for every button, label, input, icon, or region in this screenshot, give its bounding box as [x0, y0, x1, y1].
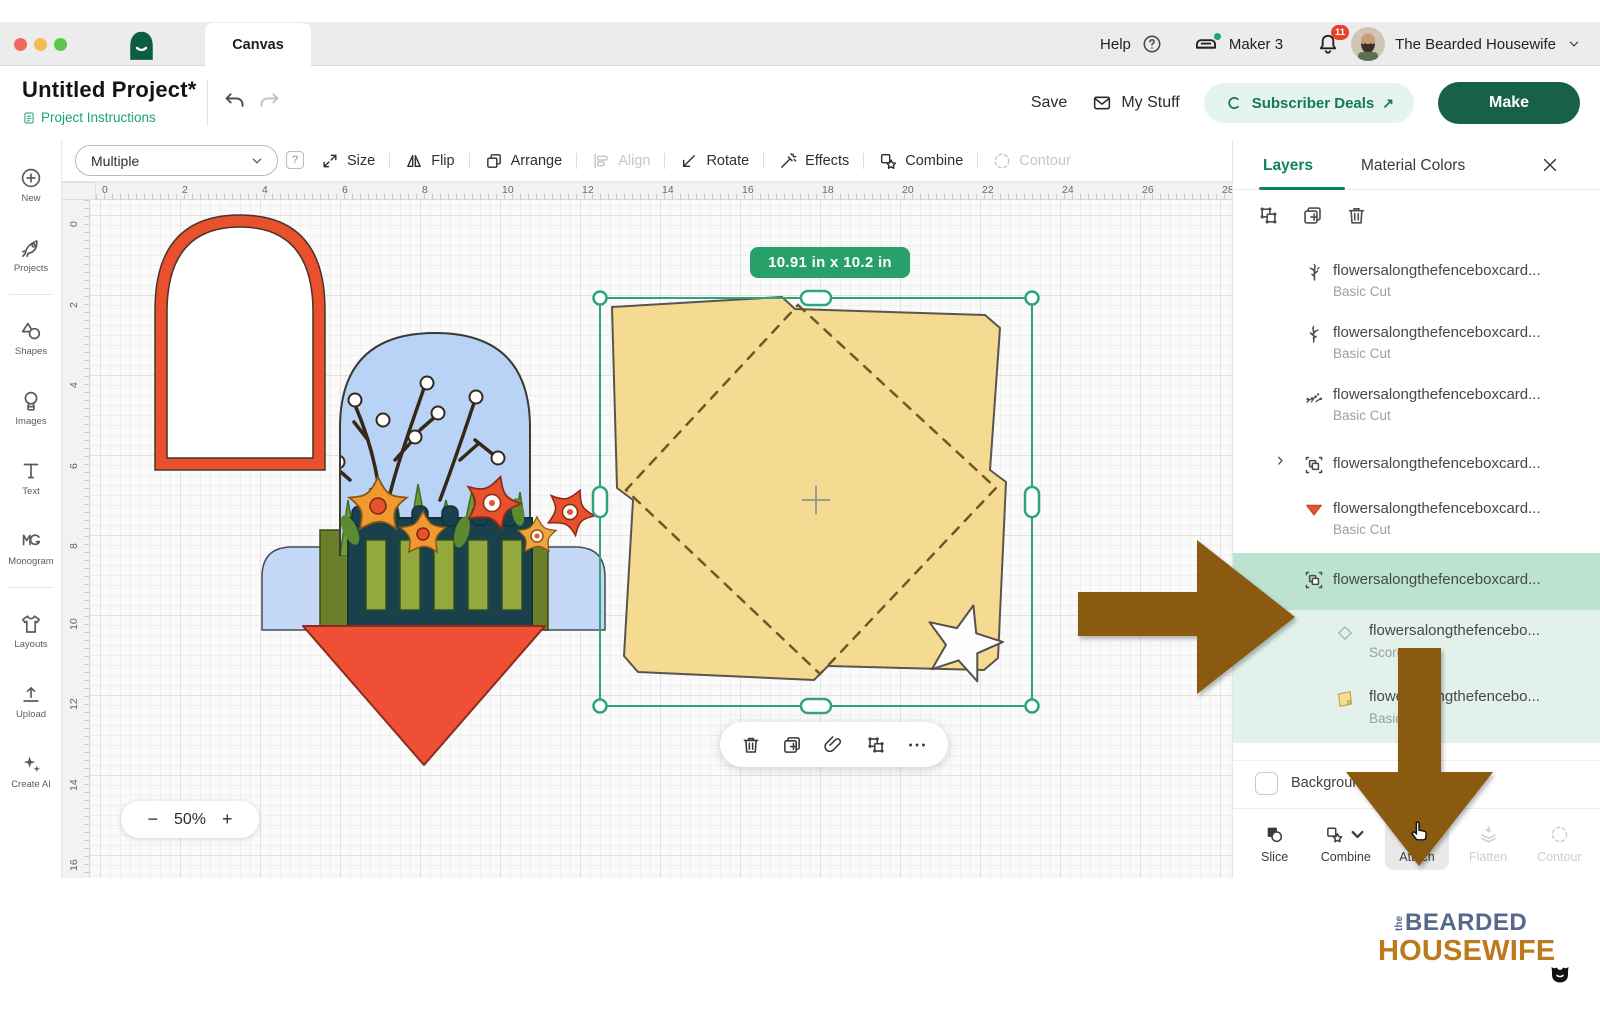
duplicate-layer-icon[interactable]	[1301, 204, 1324, 227]
selection-handle[interactable]	[801, 699, 831, 713]
trash-icon[interactable]	[740, 734, 762, 756]
attach-icon[interactable]	[823, 734, 845, 756]
notification-badge: 11	[1331, 25, 1349, 40]
selection-handle[interactable]	[594, 292, 607, 305]
images-icon	[19, 389, 43, 413]
text-icon	[19, 459, 43, 483]
sidebar-item-label: Text	[22, 486, 39, 497]
ruler-number: 20	[902, 184, 914, 196]
ruler-number: 8	[68, 531, 80, 549]
cricut-ring-icon	[1224, 93, 1244, 113]
toolbar-item-label: Align	[618, 153, 650, 169]
header: Untitled Project* Project Instructions S…	[0, 66, 1600, 140]
toolbar-item-size[interactable]: Size	[306, 151, 389, 171]
layer-name: flowersalongthefenceboxcard...	[1333, 324, 1541, 341]
toolbar-item-label: Size	[347, 153, 375, 169]
document-icon	[22, 111, 36, 125]
my-stuff-label: My Stuff	[1121, 94, 1179, 112]
page-title: Untitled Project*	[22, 77, 197, 103]
ruler-number: 8	[422, 184, 428, 196]
selection-type-dropdown[interactable]: Multiple	[75, 145, 278, 176]
arrange-icon	[484, 151, 504, 171]
project-instructions-link[interactable]: Project Instructions	[22, 110, 156, 125]
duplicate-icon[interactable]	[781, 734, 803, 756]
zoom-out-button[interactable]: −	[147, 809, 158, 830]
zoom-level: 50%	[174, 811, 206, 829]
envelope-icon	[1091, 92, 1113, 114]
right-arrow-annotation	[1078, 540, 1295, 694]
tab-canvas[interactable]: Canvas	[205, 23, 311, 67]
titlebar: Canvas Help Maker 3 11 The Bearded House…	[0, 0, 1600, 66]
toolbar-item-arrange[interactable]: Arrange	[470, 151, 577, 171]
toolbar-item-label: Flip	[431, 153, 454, 169]
sidebar-item-label: Create AI	[11, 779, 51, 790]
sidebar-item-new[interactable]: New	[0, 152, 62, 218]
sidebar-item-label: Layouts	[14, 639, 47, 650]
toolbar-item-align: Align	[577, 151, 664, 171]
contour-icon	[992, 151, 1012, 171]
ruler-number: 26	[1142, 184, 1154, 196]
sidebar-divider	[9, 587, 53, 588]
ruler-corner	[62, 182, 96, 200]
twig-layer-icon	[1303, 261, 1325, 283]
sidebar-item-create-ai[interactable]: Create AI	[0, 738, 62, 804]
ruler-number: 16	[68, 853, 80, 871]
help-icon[interactable]	[1141, 33, 1163, 55]
sidebar-item-label: Upload	[16, 709, 46, 720]
layer-row[interactable]: ›flowersalongthefenceboxcard...	[1233, 439, 1600, 491]
beard-icon	[1548, 961, 1572, 985]
zoom-in-button[interactable]: +	[222, 809, 233, 830]
ruler-number: 0	[68, 209, 80, 227]
twig2-layer-icon	[1303, 323, 1325, 345]
flowers-layer-icon	[1303, 385, 1325, 407]
arch-shape[interactable]	[155, 215, 325, 470]
selection-handle[interactable]	[1026, 292, 1039, 305]
panel-tools	[1233, 190, 1600, 242]
close-icon[interactable]	[1540, 155, 1560, 175]
sidebar-item-layouts[interactable]: Layouts	[0, 598, 62, 664]
panel-tabs: Layers Material Colors	[1233, 140, 1600, 190]
window-minimize-button[interactable]	[34, 38, 47, 51]
tab-material-colors[interactable]: Material Colors	[1361, 157, 1465, 175]
ruler-number: 18	[822, 184, 834, 196]
annotation-arrows	[1060, 520, 1510, 880]
toolbar-item-combine[interactable]: Combine	[864, 151, 977, 171]
rotate-icon	[679, 151, 699, 171]
size-icon	[320, 151, 340, 171]
watermark: the BEARDED HOUSEWIFE	[1378, 903, 1568, 991]
selection-handle[interactable]	[1026, 700, 1039, 713]
toolbar-item-effects[interactable]: Effects	[764, 151, 863, 171]
sidebar-item-label: Monogram	[8, 556, 53, 567]
triangle-layer-icon	[1303, 499, 1325, 521]
layer-row[interactable]: flowersalongthefenceboxcard...Basic Cut	[1233, 377, 1600, 439]
ruler-number: 10	[68, 612, 80, 630]
group-layer-icon	[1303, 454, 1325, 476]
flip-icon	[404, 151, 424, 171]
ruler-number: 16	[742, 184, 754, 196]
toolbar-item-label: Contour	[1019, 153, 1071, 169]
layer-type: Basic Cut	[1333, 284, 1391, 299]
ruler-number: 24	[1062, 184, 1074, 196]
sidebar-item-text[interactable]: Text	[0, 445, 62, 511]
selection-handle[interactable]	[593, 487, 607, 517]
weld-icon[interactable]	[865, 734, 887, 756]
ruler-number: 2	[68, 290, 80, 308]
help-label[interactable]: Help	[1100, 36, 1131, 53]
sidebar-divider	[9, 294, 53, 295]
cursor-hand-icon	[1406, 818, 1433, 845]
new-icon	[19, 166, 43, 190]
zoom-control: − 50% +	[121, 801, 259, 838]
ruler-number: 4	[68, 370, 80, 388]
selection-handle[interactable]	[594, 700, 607, 713]
layer-name: flowersalongthefenceboxcard...	[1333, 386, 1541, 403]
ruler-number: 12	[68, 692, 80, 710]
save-button[interactable]: Save	[1031, 94, 1067, 112]
red-triangle-shape[interactable]	[303, 626, 545, 765]
notifications-button[interactable]: 11	[1315, 31, 1341, 57]
sidebar-item-label: Images	[15, 416, 46, 427]
action-contour: Contour	[1527, 818, 1591, 870]
layouts-icon	[19, 612, 43, 636]
align-icon	[591, 151, 611, 171]
layer-row[interactable]: flowersalongthefenceboxcard...Basic Cut	[1233, 315, 1600, 377]
sidebar-item-shapes[interactable]: Shapes	[0, 305, 62, 371]
ruler-number: 28	[1222, 184, 1232, 196]
horizontal-ruler: 0246810121416182022242628	[96, 182, 1232, 200]
toolbar-item-rotate[interactable]: Rotate	[665, 151, 763, 171]
more-options-icon[interactable]	[906, 734, 928, 756]
chevron-right-icon[interactable]: ›	[1277, 450, 1283, 472]
upload-icon	[19, 682, 43, 706]
watermark-line2: HOUSEWIFE	[1378, 935, 1555, 968]
sidebar-item-upload[interactable]: Upload	[0, 668, 62, 734]
divider	[207, 80, 208, 126]
ruler-number: 22	[982, 184, 994, 196]
size-badge: 10.91 in x 10.2 in	[750, 247, 910, 278]
toolbar-item-label: Rotate	[706, 153, 749, 169]
machine-online-dot	[1214, 33, 1221, 40]
ruler-number: 10	[502, 184, 514, 196]
ruler-number: 2	[182, 184, 188, 196]
selection-toolbar	[720, 722, 948, 767]
ruler-number: 12	[582, 184, 594, 196]
projects-icon	[19, 236, 43, 260]
subscriber-deals-label: Subscriber Deals	[1252, 95, 1375, 112]
toolbar-item-flip[interactable]: Flip	[390, 151, 468, 171]
avatar[interactable]	[1351, 27, 1385, 61]
chevron-down-icon	[249, 153, 265, 169]
createai-icon	[19, 752, 43, 776]
watermark-line1: BEARDED	[1405, 909, 1527, 937]
make-button[interactable]: Make	[1438, 82, 1580, 124]
envelope-shape[interactable]	[612, 297, 1006, 681]
toolbar-item-label: Arrange	[511, 153, 563, 169]
sidebar-item-monogram[interactable]: Monogram	[0, 515, 62, 581]
sidebar-item-label: New	[21, 193, 40, 204]
sidebar-item-projects[interactable]: Projects	[0, 222, 62, 288]
selection-handle[interactable]	[801, 291, 831, 305]
toolbar-item-label: Effects	[805, 153, 849, 169]
sidebar-item-images[interactable]: Images	[0, 375, 62, 441]
selection-type-value: Multiple	[91, 153, 139, 169]
layer-row[interactable]: flowersalongthefenceboxcard...Basic Cut	[1233, 253, 1600, 315]
machine-label[interactable]: Maker 3	[1229, 36, 1283, 53]
my-stuff-button[interactable]: My Stuff	[1091, 92, 1179, 114]
ruler-number: 6	[342, 184, 348, 196]
layer-name: flowersalongthefenceboxcard...	[1333, 500, 1541, 517]
toolbar-item-contour: Contour	[978, 151, 1085, 171]
layer-type: Basic Cut	[1333, 346, 1391, 361]
sidebar-item-label: Shapes	[15, 346, 47, 357]
tab-layers[interactable]: Layers	[1263, 157, 1313, 175]
ruler-number: 0	[102, 184, 108, 196]
external-arrow-icon: ↗	[1382, 95, 1394, 112]
delete-layer-icon[interactable]	[1345, 204, 1368, 227]
toolbar-items: SizeFlipArrangeAlignRotateEffectsCombine…	[306, 140, 1085, 181]
project-instructions-label: Project Instructions	[41, 110, 156, 125]
shapes-icon	[19, 319, 43, 343]
toolbar-help-button[interactable]: ?	[286, 151, 304, 169]
watermark-prefix: the	[1394, 916, 1405, 931]
selection-handle[interactable]	[1025, 487, 1039, 517]
layer-name: flowersalongthefenceboxcard...	[1333, 455, 1541, 472]
account-name[interactable]: The Bearded Housewife	[1395, 36, 1556, 53]
layer-name: flowersalongthefenceboxcard...	[1333, 262, 1541, 279]
window-zoom-button[interactable]	[54, 38, 67, 51]
action-label: Contour	[1537, 850, 1581, 864]
toolbar-item-label: Combine	[905, 153, 963, 169]
group-layers-icon[interactable]	[1257, 204, 1280, 227]
machine-status-icon[interactable]	[1193, 31, 1219, 57]
ruler-number: 14	[68, 773, 80, 791]
window-close-button[interactable]	[14, 38, 27, 51]
undo-button[interactable]	[222, 88, 248, 114]
sidebar-item-label: Projects	[14, 263, 48, 274]
contour-action-icon	[1549, 824, 1570, 845]
combine-icon	[878, 151, 898, 171]
layer-type: Basic Cut	[1333, 408, 1391, 423]
design-space-app: Canvas Help Maker 3 11 The Bearded House…	[0, 0, 1600, 1017]
chevron-down-icon[interactable]	[1566, 36, 1582, 52]
subscriber-deals-button[interactable]: Subscriber Deals ↗	[1204, 83, 1414, 123]
cricut-logo-icon	[128, 30, 155, 62]
monogram-icon	[19, 529, 43, 553]
sidebar: NewProjectsShapesImagesTextMonogramLayou…	[0, 140, 62, 878]
redo-button[interactable]	[256, 88, 282, 114]
effects-icon	[778, 151, 798, 171]
ruler-number: 6	[68, 451, 80, 469]
ruler-number: 4	[262, 184, 268, 196]
ruler-number: 14	[662, 184, 674, 196]
